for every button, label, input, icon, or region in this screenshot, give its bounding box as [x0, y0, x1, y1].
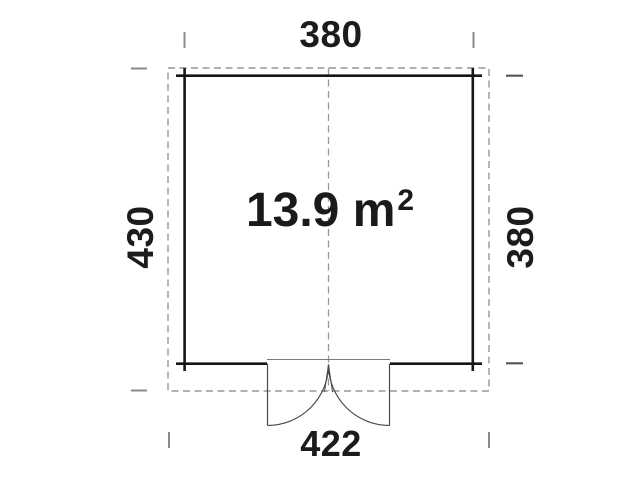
- area-value: 13.9 m: [246, 184, 395, 237]
- door-arc-right: [328, 365, 389, 426]
- dimension-label-top: 380: [256, 14, 406, 56]
- double-door-swing: [268, 364, 390, 426]
- floor-plan-drawing: 380 422 430 380 13.9 m2: [0, 0, 640, 480]
- area-label: 13.9 m2: [210, 183, 450, 238]
- dimension-label-bottom: 422: [256, 423, 406, 465]
- dimension-label-left: 430: [121, 162, 161, 312]
- floor-plan-linework: [0, 0, 640, 480]
- door-center-leaf-right: [329, 365, 333, 393]
- door-arc-left: [268, 365, 329, 426]
- door-center-leaf-left: [325, 365, 329, 393]
- area-exponent: 2: [397, 184, 414, 218]
- dimension-ticks: [131, 32, 523, 448]
- dimension-label-right: 380: [501, 162, 541, 312]
